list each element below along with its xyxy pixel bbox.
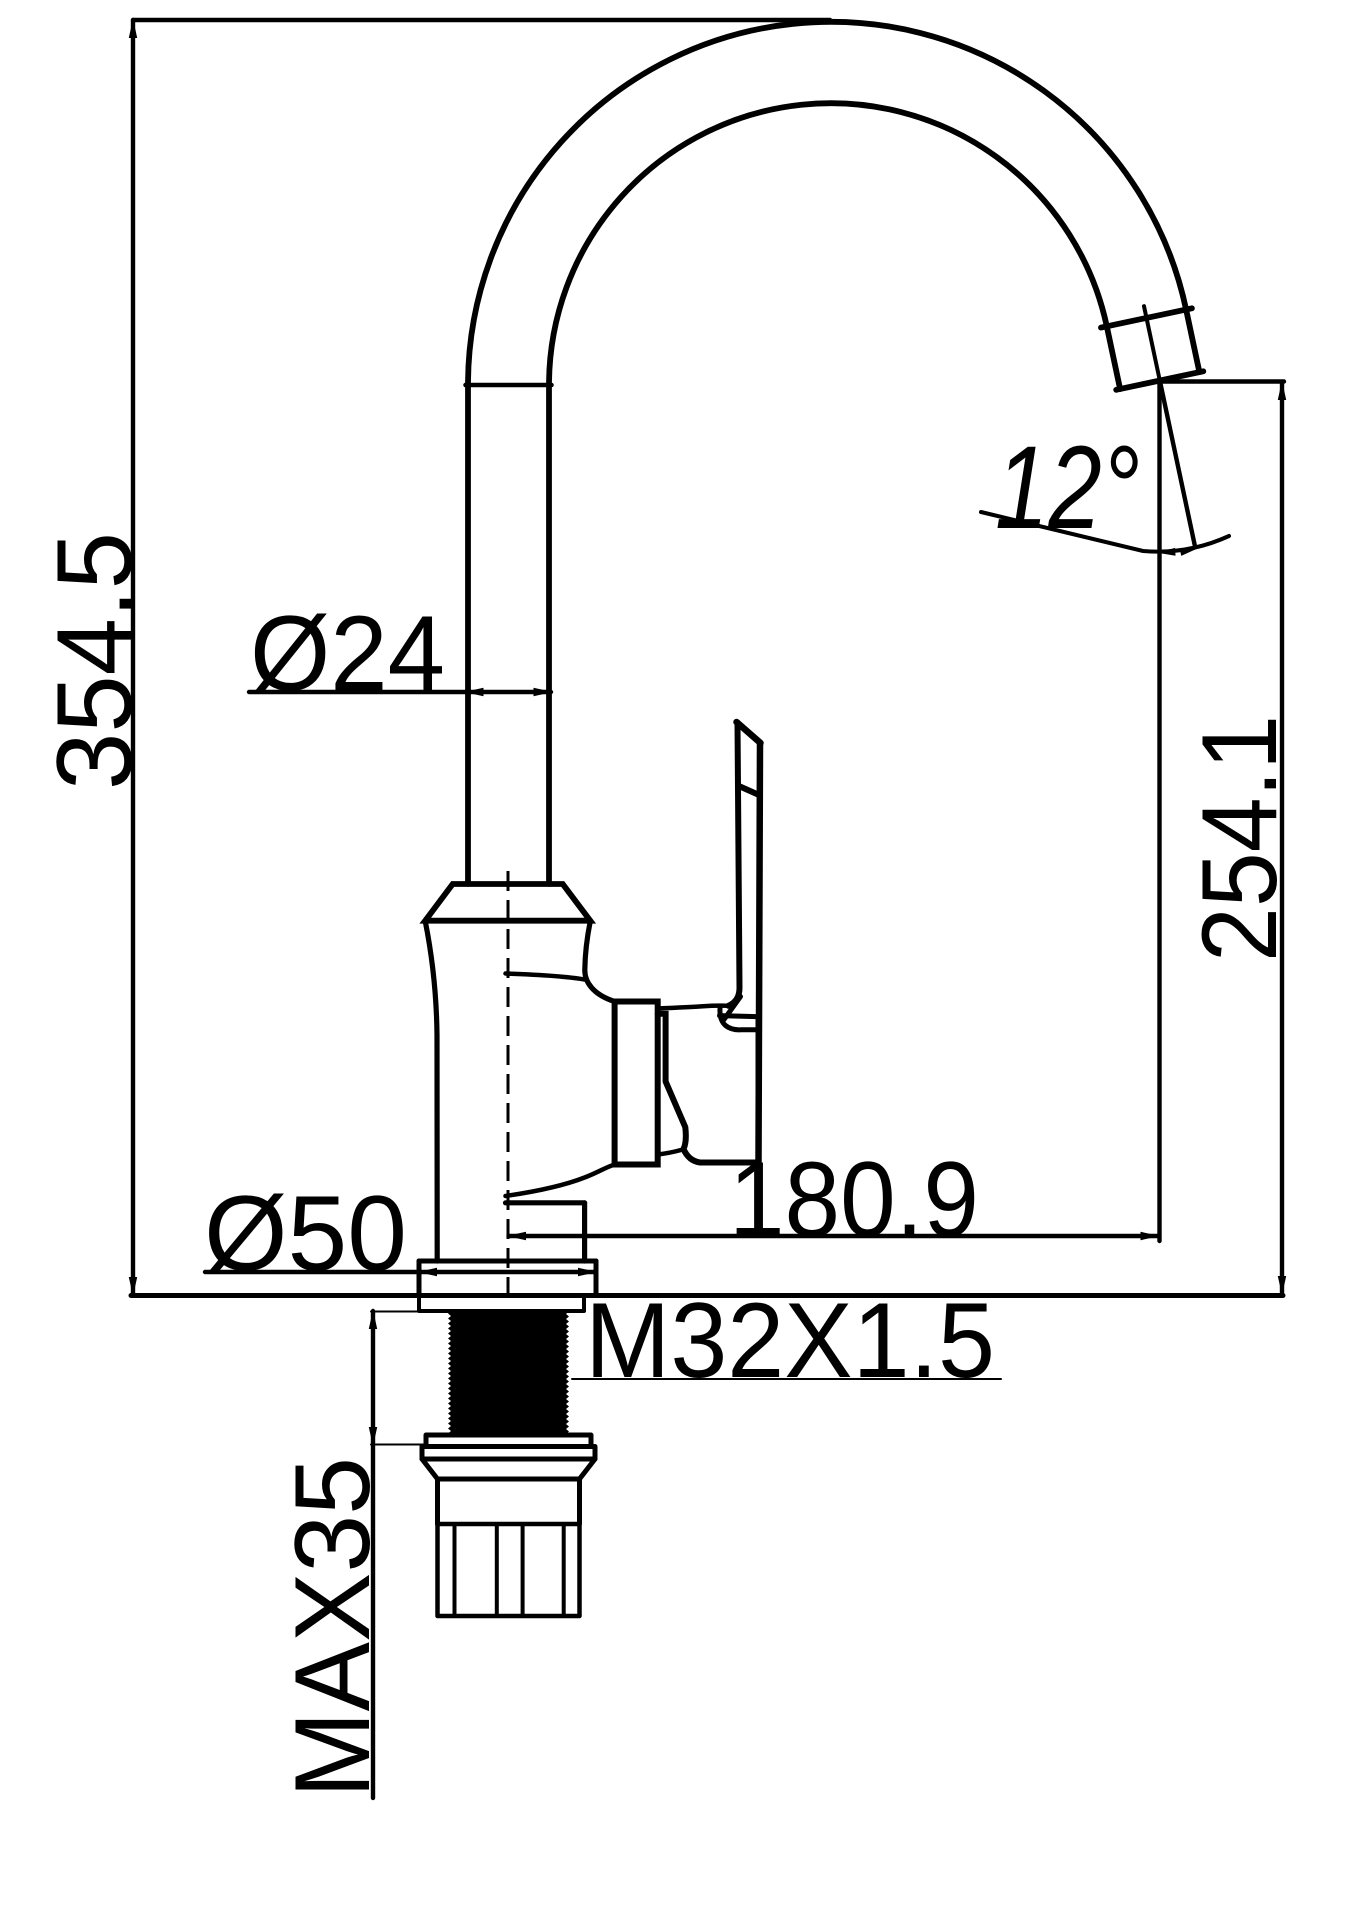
svg-text:12°: 12°: [995, 422, 1140, 554]
svg-text:354.5: 354.5: [34, 532, 154, 790]
svg-text:MAX35: MAX35: [272, 1457, 392, 1798]
svg-text:M32X1.5: M32X1.5: [585, 1280, 995, 1400]
svg-text:Ø50: Ø50: [204, 1173, 407, 1293]
svg-text:254.1: 254.1: [1179, 715, 1299, 962]
svg-text:180.9: 180.9: [729, 1139, 979, 1259]
svg-text:Ø24: Ø24: [250, 593, 445, 713]
